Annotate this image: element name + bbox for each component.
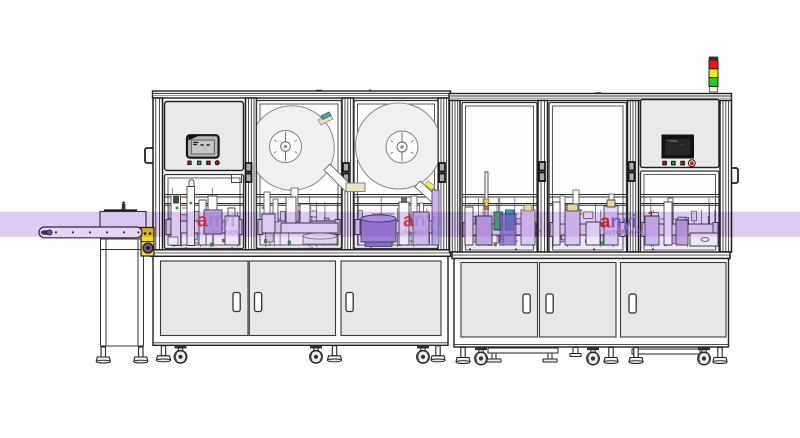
svg-text:nyi: nyi (611, 211, 638, 232)
svg-text:a: a (403, 211, 414, 232)
svg-text:nyi: nyi (414, 211, 441, 232)
svg-text:nyi: nyi (208, 211, 235, 232)
svg-text:a: a (600, 211, 611, 232)
svg-text:a: a (197, 211, 208, 232)
svg-text:AUTOMATION: AUTOMATION (198, 231, 240, 237)
svg-text:AUTOMATION: AUTOMATION (395, 231, 437, 237)
svg-text:AUTOMATION: AUTOMATION (603, 231, 647, 237)
